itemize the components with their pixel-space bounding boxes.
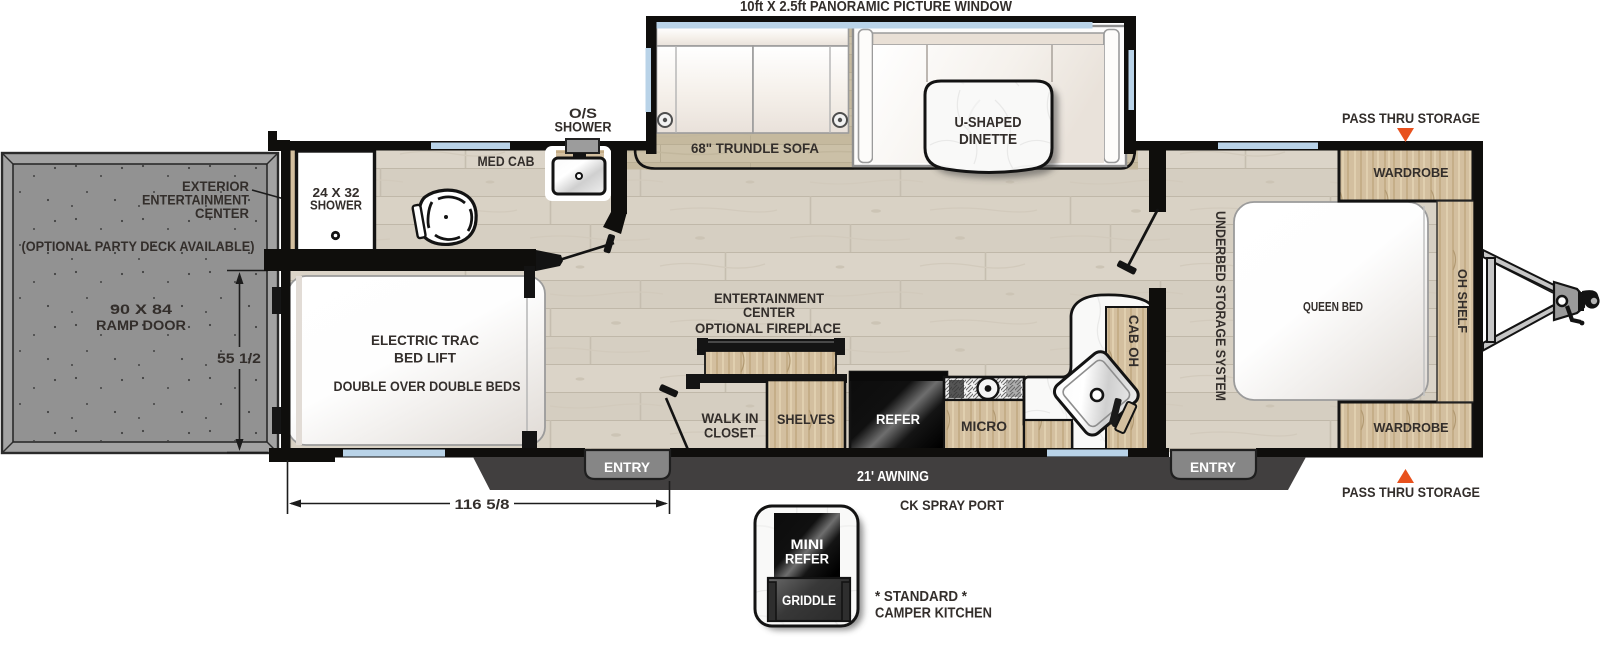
svg-text:SHOWER: SHOWER [555,120,612,135]
svg-text:RAMP DOOR: RAMP DOOR [96,318,186,333]
svg-text:90 X 84: 90 X 84 [110,302,173,317]
svg-text:SHELVES: SHELVES [777,412,835,427]
svg-text:* STANDARD *: * STANDARD * [875,589,967,605]
svg-text:MICRO: MICRO [961,419,1007,434]
svg-text:BED LIFT: BED LIFT [394,351,457,366]
svg-text:WALK IN: WALK IN [702,411,759,426]
svg-text:WARDROBE: WARDROBE [1374,420,1449,435]
svg-text:CLOSET: CLOSET [704,426,757,441]
svg-text:OPTIONAL FIREPLACE: OPTIONAL FIREPLACE [695,321,841,336]
svg-text:ELECTRIC TRAC: ELECTRIC TRAC [371,333,479,348]
svg-text:UNDERBED STORAGE SYSTEM: UNDERBED STORAGE SYSTEM [1213,211,1228,401]
svg-text:(OPTIONAL PARTY DECK AVAILABLE: (OPTIONAL PARTY DECK AVAILABLE) [22,239,255,254]
svg-text:CK SPRAY PORT: CK SPRAY PORT [900,497,1004,513]
svg-text:PASS THRU STORAGE: PASS THRU STORAGE [1342,484,1480,500]
svg-text:ENTRY: ENTRY [604,459,651,475]
svg-text:REFER: REFER [785,552,829,567]
svg-text:MED CAB: MED CAB [478,154,535,169]
svg-text:21' AWNING: 21' AWNING [857,469,929,485]
svg-text:ENTERTAINMENT: ENTERTAINMENT [714,291,825,306]
svg-text:REFER: REFER [876,412,920,427]
svg-text:U-SHAPED: U-SHAPED [955,115,1022,131]
svg-text:CENTER: CENTER [743,305,795,320]
svg-text:OH SHELF: OH SHELF [1455,269,1470,333]
svg-text:CAB OH: CAB OH [1126,315,1141,367]
svg-text:CENTER: CENTER [195,206,249,221]
svg-text:ENTRY: ENTRY [1190,459,1237,475]
svg-text:WARDROBE: WARDROBE [1374,165,1449,180]
svg-text:10ft X 2.5ft PANORAMIC PICTURE: 10ft X 2.5ft PANORAMIC PICTURE WINDOW [740,0,1012,15]
svg-text:MINI: MINI [791,537,824,552]
svg-text:DINETTE: DINETTE [959,132,1017,148]
svg-text:55 1/2: 55 1/2 [217,351,261,366]
svg-text:DOUBLE OVER DOUBLE BEDS: DOUBLE OVER DOUBLE BEDS [334,379,521,394]
svg-text:116 5/8: 116 5/8 [455,496,510,512]
svg-text:PASS THRU STORAGE: PASS THRU STORAGE [1342,110,1480,126]
svg-text:QUEEN BED: QUEEN BED [1303,299,1363,314]
svg-text:CAMPER KITCHEN: CAMPER KITCHEN [875,606,992,622]
svg-text:SHOWER: SHOWER [310,199,362,213]
svg-text:GRIDDLE: GRIDDLE [782,593,836,608]
svg-text:68" TRUNDLE SOFA: 68" TRUNDLE SOFA [691,141,819,156]
